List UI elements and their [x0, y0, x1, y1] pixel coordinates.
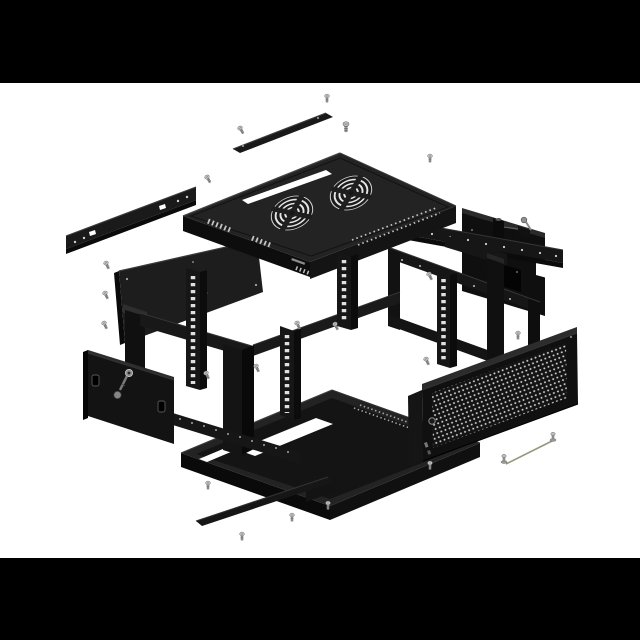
latch-block: [493, 218, 504, 240]
door-slot: [92, 375, 99, 386]
product-image: [0, 0, 640, 640]
rack-rail: [280, 326, 301, 420]
rack-rail: [186, 268, 207, 390]
letterbox-top-bar: [0, 0, 640, 83]
letterbox-bottom-bar: [0, 558, 640, 640]
rack-rail: [337, 252, 358, 330]
white-background: [0, 0, 640, 640]
rack-rail: [437, 271, 457, 368]
door-lock-icon: [125, 369, 132, 376]
exploded-cabinet-illustration: [0, 0, 640, 640]
mesh-door-lock-icon: [429, 418, 435, 424]
door-slot: [158, 401, 165, 412]
